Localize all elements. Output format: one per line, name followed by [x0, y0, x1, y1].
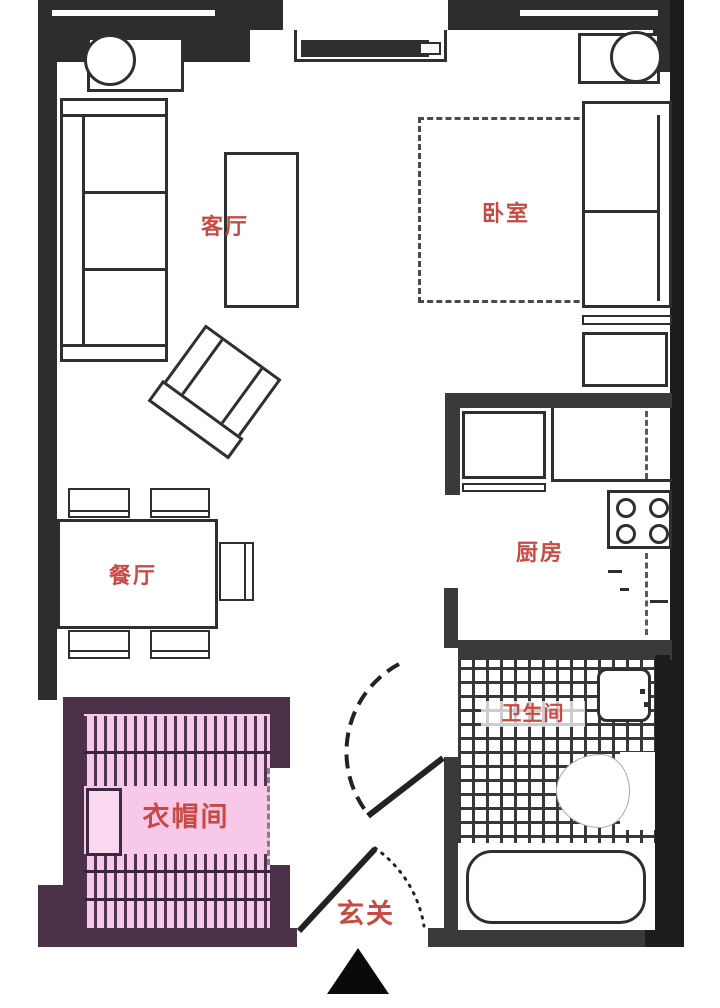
- bed-edge-line: [657, 115, 660, 301]
- counter-edge-vertical: [551, 408, 554, 481]
- sofa-cushion-line-1: [82, 191, 165, 194]
- cabinet-drawer-line: [650, 600, 668, 603]
- balcony-door-handle: [419, 42, 441, 55]
- armchair-arm-left-line: [181, 339, 223, 396]
- bathroom-door-arc: [346, 664, 399, 814]
- chair-back-line: [152, 650, 208, 652]
- fridge: [462, 411, 546, 479]
- bed-divider-line: [585, 210, 657, 213]
- sofa-armrest-top-line: [63, 114, 165, 117]
- sofa-armrest-bottom-line: [63, 344, 165, 347]
- wall-cloakroom-top: [63, 697, 290, 714]
- cloakroom-label: 衣帽间: [106, 801, 266, 833]
- sink-tap-dot-1: [640, 689, 645, 694]
- wall-kitchen-top: [445, 393, 672, 408]
- balcony-frame-left: [294, 30, 297, 62]
- sofa: [60, 98, 168, 362]
- counter-edge-horizontal: [551, 479, 672, 482]
- entrance-arrow-icon: [327, 948, 389, 994]
- sink-tap-dot-2: [644, 702, 649, 707]
- dining-chair-top-1: [68, 488, 130, 518]
- sofa-cushion-line-2: [82, 268, 165, 271]
- bed-bench: [582, 332, 668, 387]
- wall-cloakroom-left: [63, 697, 84, 888]
- dining-chair-top-2: [150, 488, 210, 518]
- chair-back-line: [70, 510, 128, 512]
- balcony-door-bar: [301, 40, 429, 57]
- window-slit-left: [52, 10, 215, 16]
- bathtub: [466, 850, 646, 924]
- bedroom-label: 卧室: [478, 201, 534, 227]
- sofa-backrest-line: [82, 114, 85, 347]
- wall-bathroom-right: [655, 655, 670, 930]
- cabinet-dashed-upper: [645, 411, 648, 479]
- wardrobe-hatch-bottom: [84, 854, 270, 928]
- dining-chair-bottom-1: [68, 630, 130, 659]
- balcony-frame-bottom: [294, 59, 447, 62]
- wall-right: [670, 0, 684, 947]
- stove-burner-4: [649, 524, 669, 544]
- wardrobe-rod-top: [84, 751, 270, 754]
- stove: [607, 490, 672, 549]
- fridge-tray: [462, 483, 546, 492]
- kitchen-label: 厨房: [508, 540, 572, 566]
- stove-burner-3: [649, 498, 669, 518]
- wall-top-left: [250, 0, 283, 30]
- chair-back-line: [152, 510, 208, 512]
- window-slit-right: [520, 10, 658, 16]
- entrance-label: 玄关: [332, 898, 400, 930]
- chair-back-line: [70, 650, 128, 652]
- wardrobe-rod-bottom-2: [84, 898, 270, 901]
- cabinet-dash-a: [608, 570, 622, 573]
- bed: [582, 101, 672, 308]
- dining-room-label: 餐厅: [105, 563, 161, 589]
- stove-burner-1: [616, 498, 636, 518]
- floor-plan: 客厅 卧室 餐厅 厨房 卫生间 衣帽间 玄关: [0, 0, 720, 1008]
- bed-footboard: [582, 315, 672, 325]
- wall-cloakroom-bottom: [63, 928, 297, 947]
- cabinet-dash-b: [620, 588, 629, 591]
- armchair-arm-right-line: [220, 368, 262, 425]
- bathroom-label: 卫生间: [481, 701, 585, 727]
- bathroom-sink: [597, 668, 651, 722]
- wall-left: [38, 0, 57, 700]
- window-slit-middle: [283, 8, 443, 14]
- wall-kitchen-left: [445, 393, 460, 495]
- corner-table-lamp: [84, 34, 136, 86]
- balcony-frame-right: [444, 30, 447, 62]
- nightstand-lamp: [610, 31, 662, 83]
- wall-bathroom-top: [458, 640, 672, 660]
- wardrobe-rod-bottom-1: [84, 870, 270, 873]
- living-room-label: 客厅: [197, 214, 253, 240]
- cabinet-dashed-lower: [645, 553, 648, 635]
- chair-back-line: [244, 544, 246, 599]
- stove-burner-2: [616, 524, 636, 544]
- bathroom-door-leaf: [368, 758, 443, 816]
- dining-chair-bottom-2: [150, 630, 210, 659]
- dining-chair-right: [219, 542, 254, 601]
